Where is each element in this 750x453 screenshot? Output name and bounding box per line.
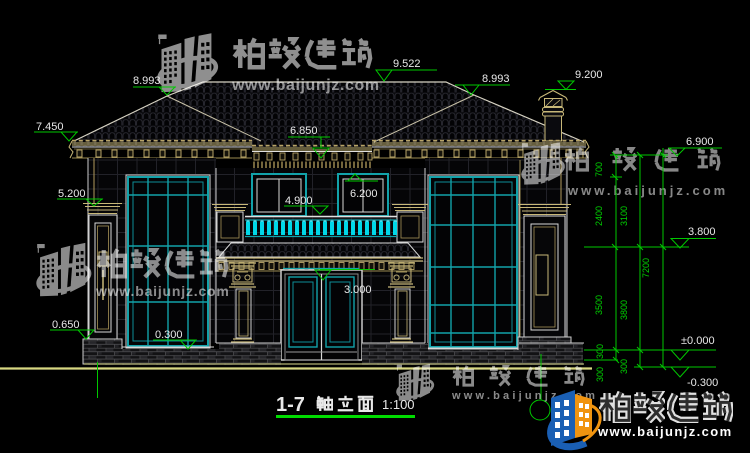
svg-text:4.900: 4.900 — [285, 195, 313, 207]
svg-text:9.200: 9.200 — [575, 69, 603, 81]
svg-text:-0.300: -0.300 — [687, 377, 718, 389]
svg-text:1:100: 1:100 — [382, 397, 415, 412]
svg-text:8.993: 8.993 — [482, 73, 510, 85]
svg-text:2400: 2400 — [594, 206, 604, 226]
svg-text:5.200: 5.200 — [58, 188, 86, 200]
svg-text:6.850: 6.850 — [290, 125, 318, 137]
svg-text:3.800: 3.800 — [688, 226, 716, 238]
svg-text:300: 300 — [595, 367, 605, 382]
svg-text:0.650: 0.650 — [52, 319, 80, 331]
svg-text:0.300: 0.300 — [155, 329, 183, 341]
svg-text:7.450: 7.450 — [36, 121, 64, 133]
svg-text:±0.000: ±0.000 — [681, 335, 715, 347]
svg-text:www.baijunjz.com: www.baijunjz.com — [95, 283, 230, 299]
svg-text:6.200: 6.200 — [350, 188, 378, 200]
svg-text:1-7: 1-7 — [276, 394, 305, 416]
svg-text:3.000: 3.000 — [344, 284, 372, 296]
svg-text:8.993: 8.993 — [133, 75, 161, 87]
svg-text:3800: 3800 — [619, 300, 629, 320]
svg-text:300: 300 — [595, 344, 605, 359]
svg-text:700: 700 — [594, 162, 604, 177]
svg-text:7200: 7200 — [641, 258, 651, 278]
svg-text:www.baijunjz.com: www.baijunjz.com — [567, 183, 728, 198]
svg-text:3500: 3500 — [594, 295, 604, 315]
svg-text:6.900: 6.900 — [686, 136, 714, 148]
svg-text:300: 300 — [619, 359, 629, 374]
svg-text:www.baijunjz.com: www.baijunjz.com — [231, 77, 380, 94]
svg-text:www.baijunjz.com: www.baijunjz.com — [597, 424, 733, 439]
svg-text:9.522: 9.522 — [393, 58, 421, 70]
svg-text:3100: 3100 — [619, 206, 629, 226]
